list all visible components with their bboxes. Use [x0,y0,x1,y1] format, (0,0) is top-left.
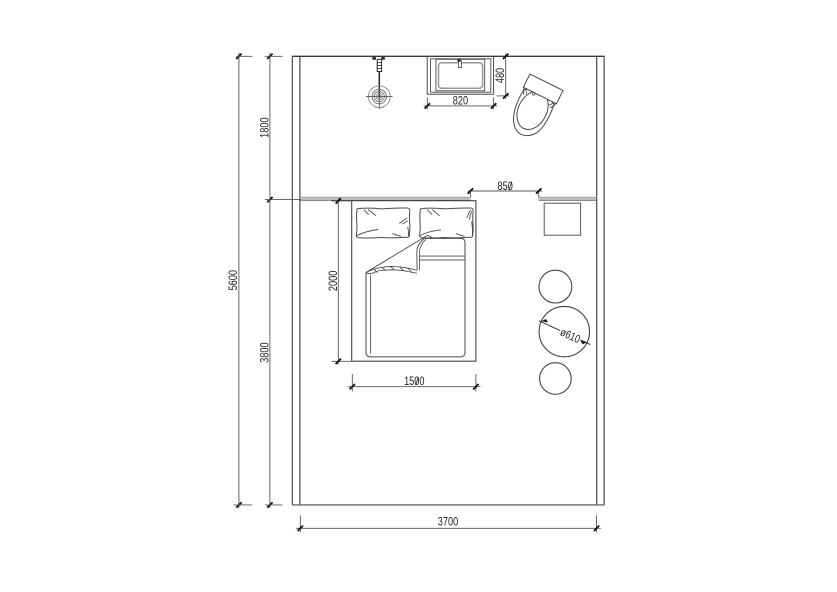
svg-text:1800: 1800 [260,117,272,138]
svg-text:5600: 5600 [228,270,240,291]
svg-text:3800: 3800 [260,342,272,363]
svg-text:820: 820 [453,96,469,108]
svg-text:480: 480 [495,68,507,84]
svg-text:850: 850 [498,181,514,193]
svg-text:2000: 2000 [328,270,340,291]
svg-text:1500: 1500 [404,376,425,388]
svg-text:3700: 3700 [438,517,459,529]
